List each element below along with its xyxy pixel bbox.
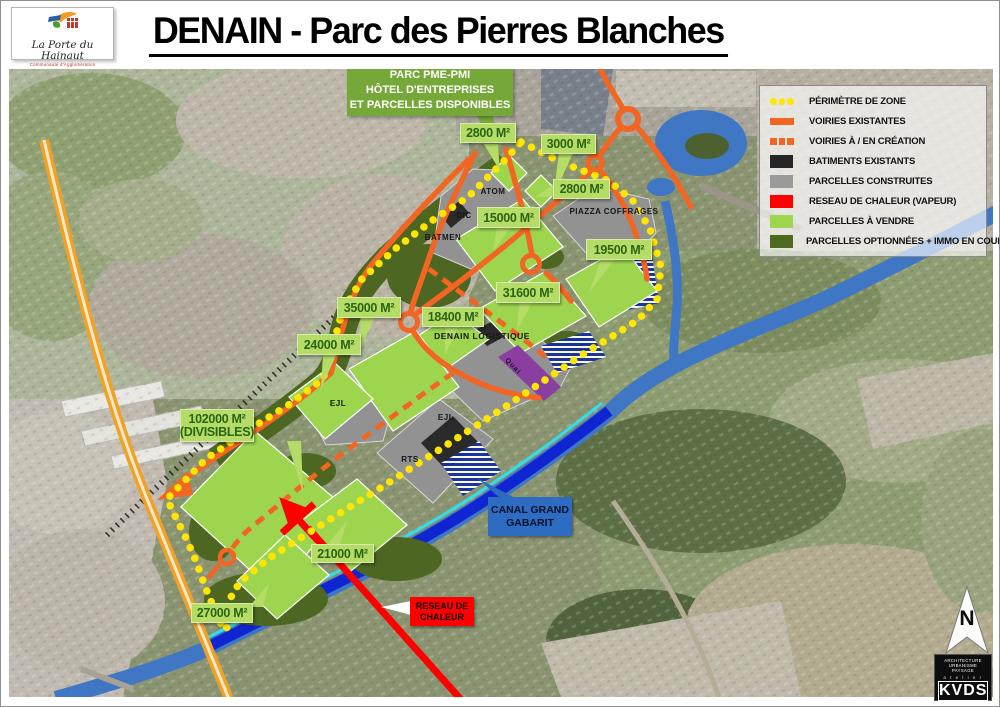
area-label-15000: 15000 M²	[477, 207, 540, 228]
legend-row-buildings: BATIMENTS EXISTANTS	[770, 151, 982, 171]
area-label-31600: 31600 M²	[496, 282, 560, 303]
canal-callout: CANAL GRAND GABARIT	[488, 497, 572, 536]
parcel-name-denain-logistique: DENAIN LOGISTIQUE	[429, 331, 535, 341]
parcel-name-piazza-coffrages: PIAZZA COFFRAGES	[567, 207, 661, 216]
legend-row-roads-existing: VOIRIES EXISTANTES	[770, 111, 982, 131]
area-label-27000: 27000 M²	[191, 603, 253, 623]
north-label: N	[952, 607, 982, 631]
legend-row-parcels-optioned: PARCELLES OPTIONNÉES + IMMO EN COURS	[770, 231, 982, 251]
perimeter-dots-icon	[770, 98, 796, 105]
legend-row-heat-network: RESEAU DE CHALEUR (VAPEUR)	[770, 191, 982, 211]
park-header-box: PARC PME-PMI HÔTEL D'ENTREPRISES ET PARC…	[347, 64, 513, 116]
buildings-swatch-icon	[770, 155, 796, 168]
park-header-line2: HÔTEL D'ENTREPRISES	[347, 83, 513, 98]
road-dashed-icon	[770, 138, 796, 145]
area-label-2800-b: 2800 M²	[553, 179, 610, 199]
legend-row-roads-creation: VOIRIES À / EN CRÉATION	[770, 131, 982, 151]
kvds-logo: ARCHITECTURE URBANISME PAYSAGE a t e l i…	[934, 654, 992, 701]
parcel-name-atom: ATOM	[473, 187, 513, 196]
area-label-24000: 24000 M²	[297, 334, 361, 355]
park-header-line3: ET PARCELLES DISPONIBLES	[347, 98, 513, 113]
road-bar-icon	[770, 118, 796, 125]
optioned-swatch-icon	[770, 235, 793, 248]
parcel-name-ejl-west: EJL	[323, 399, 353, 408]
legend: PÉRIMÈTRE DE ZONE VOIRIES EXISTANTES VOI…	[759, 85, 987, 257]
area-label-102000: 102000 M²(DIVISIBLES)	[180, 409, 254, 442]
plan-page: La Porte du Hainaut Communauté d'Agglomé…	[0, 0, 1000, 707]
logo-name: La Porte du Hainaut	[12, 40, 113, 62]
parcel-name-ejl-east: EJL	[431, 413, 461, 422]
parcel-name-batmen: BATMEN	[416, 233, 470, 242]
agglomeration-logo: La Porte du Hainaut Communauté d'Agglomé…	[11, 7, 114, 60]
logo-subtitle: Communauté d'Agglomération	[12, 62, 113, 67]
parcel-name-rts: RTS	[395, 455, 425, 464]
built-parcels-swatch-icon	[770, 175, 796, 188]
area-label-19500: 19500 M²	[586, 239, 652, 260]
legend-row-built-parcels: PARCELLES CONSTRUITES	[770, 171, 982, 191]
for-sale-swatch-icon	[770, 215, 796, 228]
area-label-35000: 35000 M²	[337, 297, 401, 318]
park-header-line1: PARC PME-PMI	[347, 68, 513, 83]
logo-glyph-icon	[41, 10, 85, 34]
area-label-2800-a: 2800 M²	[460, 123, 516, 143]
parcel-name-dic: DIC	[449, 211, 479, 220]
page-title: DENAIN - Parc des Pierres Blanches	[149, 9, 728, 57]
area-label-18400: 18400 M²	[422, 307, 484, 327]
legend-row-perimeter: PÉRIMÈTRE DE ZONE	[770, 91, 982, 111]
heat-network-swatch-icon	[770, 195, 796, 208]
heat-network-callout: RESEAU DE CHALEUR	[410, 597, 474, 626]
header: La Porte du Hainaut Communauté d'Agglomé…	[1, 1, 1000, 69]
area-label-21000: 21000 M²	[311, 544, 374, 563]
legend-row-parcels-for-sale: PARCELLES À VENDRE	[770, 211, 982, 231]
area-label-3000: 3000 M²	[541, 134, 596, 154]
